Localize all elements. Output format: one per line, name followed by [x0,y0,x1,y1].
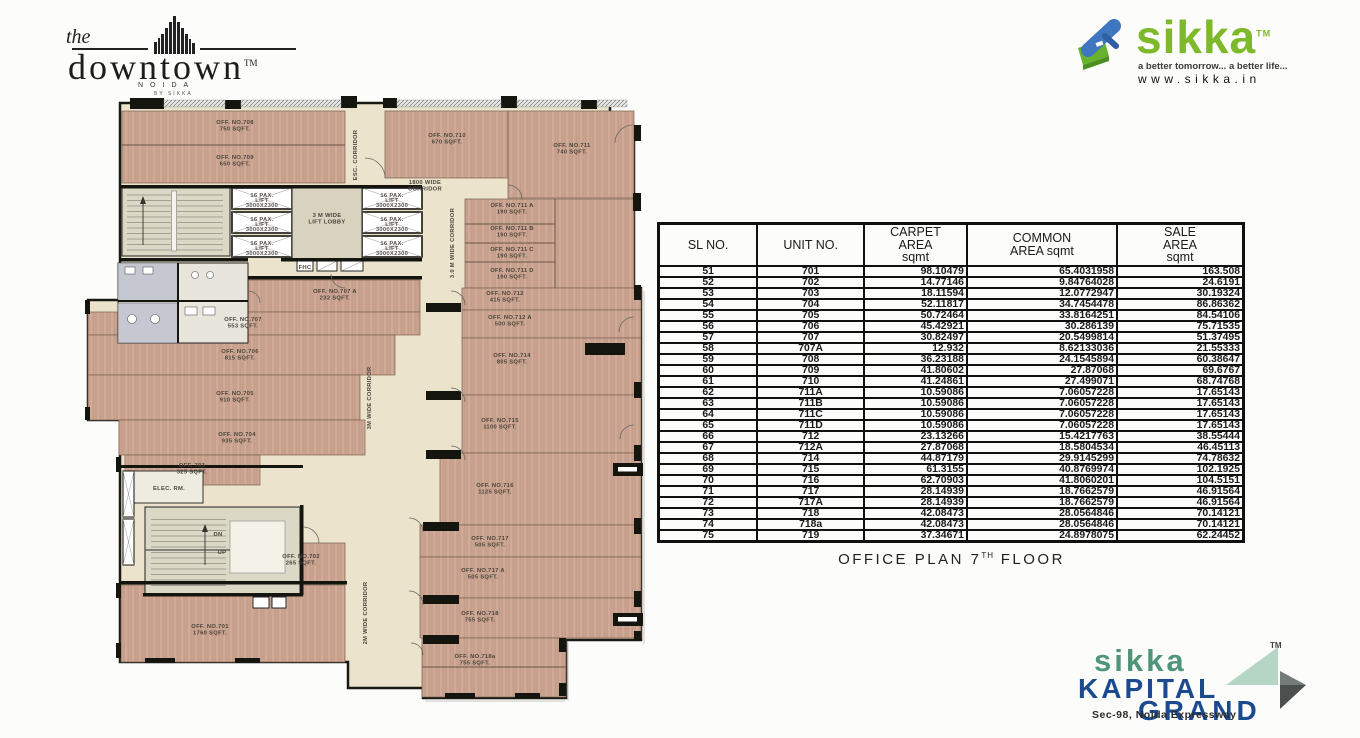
table-cell: 703 [757,288,864,299]
table-cell: 69.6767 [1117,365,1244,376]
table-cell: 104.5151 [1117,475,1244,486]
area-table: SL NO.UNIT NO.CARPETAREAsqmtCOMMONAREA s… [657,222,1246,543]
table-cell: 63 [659,398,758,409]
table-cell: 58 [659,343,758,354]
table-cell: 705 [757,310,864,321]
table-cell: 712A [757,442,864,453]
toilets [118,263,248,343]
table-cell: 711C [757,409,864,420]
room-label: OFF. NO.709650 SQFT. [216,155,254,168]
table-cell: 17.65143 [1117,409,1244,420]
table-cell: 12.0772947 [967,288,1117,299]
caption-ordinal: TH [981,551,994,560]
table-cell: 708 [757,354,864,365]
table-cell: 27.87068 [864,442,967,453]
caption-suffix: FLOOR [994,551,1065,568]
table-cell: 54 [659,299,758,310]
table-cell: 24.8978075 [967,530,1117,542]
table-cell: 10.59086 [864,409,967,420]
table-cell: 52.11817 [864,299,967,310]
table-cell: 9.84764028 [967,277,1117,288]
table-row: 5170198.1047965.4031958163.508 [659,266,1244,277]
table-cell: 719 [757,530,864,542]
room-label: OFF. NO.704935 SQFT. [218,432,256,445]
table-cell: 711B [757,398,864,409]
table-row: 5370318.1159412.077294730.19324 [659,288,1244,299]
table-row: 64711C10.590867.0605722817.65143 [659,409,1244,420]
sikka-tm: TM [1256,29,1271,39]
table-cell: 718a [757,519,864,530]
table-cell: 41.24861 [864,376,967,387]
table-cell: 68 [659,453,758,464]
table-cell: 8.62133036 [967,343,1117,354]
table-cell: 75.71535 [1117,321,1244,332]
table-cell: 72 [659,497,758,508]
table-cell: 74.78632 [1117,453,1244,464]
table-cell: 27.87068 [967,365,1117,376]
table-cell: 710 [757,376,864,387]
table-cell: 20.5499814 [967,332,1117,343]
table-cell: 28.14939 [864,486,967,497]
brochure-page: { "branding": { "downtown": {"the":"the"… [0,0,1360,738]
table-cell: 704 [757,299,864,310]
room-label: OFF. NO.705910 SQFT. [216,391,254,404]
table-cell: 7.06057228 [967,420,1117,431]
table-cell: 712 [757,431,864,442]
table-cell: 45.42921 [864,321,967,332]
table-row: 74718a42.0847328.056484670.14121 [659,519,1244,530]
table-cell: 50.72464 [864,310,967,321]
area-table-head-row: SL NO.UNIT NO.CARPETAREAsqmtCOMMONAREA s… [659,224,1244,266]
table-cell: 36.23188 [864,354,967,365]
table-row: 7171728.1493918.766257946.91564 [659,486,1244,497]
table-cell: 46.91564 [1117,486,1244,497]
table-cell: 17.65143 [1117,420,1244,431]
table-cell: 709 [757,365,864,376]
table-cell: 70 [659,475,758,486]
table-row: 7571937.3467124.897807562.24452 [659,530,1244,542]
room-label: OFF. NO.712415 SQFT. [486,291,523,304]
table-row: 72717A28.1493918.766257946.91564 [659,497,1244,508]
table-cell: 163.508 [1117,266,1244,277]
table-cell: 62.24452 [1117,530,1244,542]
table-cell: 46.45113 [1117,442,1244,453]
room-label: OFF. 703325 SQFT. [177,463,207,476]
table-cell: 66 [659,431,758,442]
table-cell: 60 [659,365,758,376]
table-cell: 701 [757,266,864,277]
plan-caption: OFFICE PLAN 7TH FLOOR [657,551,1246,568]
table-cell: 28.14939 [864,497,967,508]
table-cell: 10.59086 [864,387,967,398]
table-cell: 702 [757,277,864,288]
downtown-logo: the downtownTM NOIDA BY SIKKA [58,12,308,92]
table-cell: 60.38647 [1117,354,1244,365]
table-cell: 24.6191 [1117,277,1244,288]
table-cell: 718 [757,508,864,519]
table-cell: 38.55444 [1117,431,1244,442]
table-row: 5770730.8249720.549981451.37495 [659,332,1244,343]
table-cell: 17.65143 [1117,387,1244,398]
table-cell: 70.14121 [1117,508,1244,519]
table-cell: 24.1545894 [967,354,1117,365]
room-label: OFF. NO.718a755 SQFT. [455,654,496,667]
table-cell: 18.5804534 [967,442,1117,453]
table-row: 7371842.0847328.056484670.14121 [659,508,1244,519]
table-cell: 71 [659,486,758,497]
table-cell: 15.4217763 [967,431,1117,442]
table-row: 6070941.8060227.8706869.6767 [659,365,1244,376]
room-label: OFF. NO.710670 SQFT. [428,133,465,146]
table-cell: 21.55333 [1117,343,1244,354]
table-cell: 52 [659,277,758,288]
table-cell: 14.77146 [864,277,967,288]
table-row: 65711D10.590867.0605722817.65143 [659,420,1244,431]
room-label: OFF. NO.7161125 SQFT. [476,483,514,496]
table-row: 6671223.1326615.421776338.55444 [659,431,1244,442]
area-table-body: 5170198.1047965.4031958163.5085270214.77… [659,266,1244,542]
table-cell: 7.06057228 [967,387,1117,398]
plan-annotation: 3 M WIDELIFT LOBBY [308,213,345,226]
table-cell: 717 [757,486,864,497]
table-cell: 17.65143 [1117,398,1244,409]
room-label: OFF. NO.717505 SQFT. [471,536,508,549]
plan-annotation: ELEC. RM. [153,486,185,492]
table-row: 6971561.315540.8769974102.1925 [659,464,1244,475]
table-cell: 7.06057228 [967,398,1117,409]
table-cell: 53 [659,288,758,299]
column-header: UNIT NO. [757,224,864,266]
upper-stair-core [122,188,230,256]
plan-annotation: 3.0 M WIDE CORRIDOR [450,207,456,278]
table-cell: 62.70903 [864,475,967,486]
plan-annotation: DN [214,532,223,538]
room-label: OFF. NO.708750 SQFT. [216,120,254,133]
room-label: OFF. NO.718755 SQFT. [461,611,499,624]
plan-annotation: UP [218,550,227,556]
room-label: OFF. NO.707553 SQFT. [224,317,261,330]
table-cell: 44.87179 [864,453,967,464]
table-cell: 706 [757,321,864,332]
table-cell: 59 [659,354,758,365]
floor-plan: OFF. NO.708750 SQFT.OFF. NO.709650 SQFT.… [85,95,645,710]
table-cell: 64 [659,409,758,420]
plan-annotation: ESC. CORRIDOR [353,129,359,180]
table-row: 58707A12.9328.6213303621.55333 [659,343,1244,354]
downtown-name: downtown [68,47,244,87]
table-cell: 70.14121 [1117,519,1244,530]
table-cell: 46.91564 [1117,497,1244,508]
table-cell: 55 [659,310,758,321]
table-cell: 67 [659,442,758,453]
sikka-icon [1072,14,1132,77]
table-cell: 42.08473 [864,519,967,530]
table-cell: 56 [659,321,758,332]
column-header: SALEAREAsqmt [1117,224,1244,266]
sikka-name: sikkaTM [1136,10,1271,64]
table-cell: 37.34671 [864,530,967,542]
table-cell: 18.11594 [864,288,967,299]
plan-annotation: 2M WIDE CORRIDOR [363,581,369,644]
table-row: 67712A27.8706818.580453446.45113 [659,442,1244,453]
table-cell: 711A [757,387,864,398]
table-cell: 41.80602 [864,365,967,376]
table-cell: 30.19324 [1117,288,1244,299]
table-cell: 716 [757,475,864,486]
downtown-tm: TM [244,58,258,68]
table-cell: 711D [757,420,864,431]
table-cell: 68.74768 [1117,376,1244,387]
table-cell: 27.499071 [967,376,1117,387]
table-cell: 40.8769974 [967,464,1117,475]
table-row: 7071662.7090341.8060201104.5151 [659,475,1244,486]
table-cell: 18.7662579 [967,486,1117,497]
table-cell: 12.932 [864,343,967,354]
table-row: 6871444.8717929.914529974.78632 [659,453,1244,464]
table-cell: 51.37495 [1117,332,1244,343]
table-cell: 62 [659,387,758,398]
table-cell: 61 [659,376,758,387]
table-cell: 33.8164251 [967,310,1117,321]
table-cell: 61.3155 [864,464,967,475]
table-row: 63711B10.590867.0605722817.65143 [659,398,1244,409]
table-cell: 84.54106 [1117,310,1244,321]
table-cell: 28.0564846 [967,508,1117,519]
room-label: OFF. NO.711740 SQFT. [553,143,591,156]
column-header: SL NO. [659,224,758,266]
table-cell: 30.82497 [864,332,967,343]
table-cell: 65.4031958 [967,266,1117,277]
table-row: 5670645.4292130.28613975.71535 [659,321,1244,332]
table-cell: 7.06057228 [967,409,1117,420]
table-cell: 74 [659,519,758,530]
table-cell: 42.08473 [864,508,967,519]
kapital-address: Sec-98, Noida Expressway [1092,709,1237,721]
sikka-name-text: sikka [1136,11,1256,63]
table-row: 6171041.2486127.49907168.74768 [659,376,1244,387]
table-cell: 717A [757,497,864,508]
table-cell: 98.10479 [864,266,967,277]
table-row: 5470452.1181734.745447886.86362 [659,299,1244,310]
table-cell: 73 [659,508,758,519]
table-cell: 65 [659,420,758,431]
room-label: OFF. NO.702265 SQFT. [282,554,319,567]
table-cell: 714 [757,453,864,464]
table-cell: 10.59086 [864,398,967,409]
room-label: OFF. NO.706815 SQFT. [221,349,259,362]
table-cell: 34.7454478 [967,299,1117,310]
sikka-url: www.sikka.in [1138,72,1261,86]
kapital-tm: TM [1270,641,1282,650]
table-cell: 18.7662579 [967,497,1117,508]
kapital-grand-logo: sikka TM KAPITAL GRAND Sec-98, Noida Exp… [1058,643,1313,733]
table-cell: 102.1925 [1117,464,1244,475]
room-label: OFF. NO.7151100 SQFT. [481,418,519,431]
table-cell: 51 [659,266,758,277]
table-cell: 10.59086 [864,420,967,431]
table-row: 62711A10.590867.0605722817.65143 [659,387,1244,398]
room-label: OFF. NO.714805 SQFT. [493,353,531,366]
table-cell: 75 [659,530,758,542]
table-cell: 41.8060201 [967,475,1117,486]
sikka-logo: sikkaTM a better tomorrow... a better li… [1072,14,1312,90]
table-row: 5570550.7246433.816425184.54106 [659,310,1244,321]
table-cell: 707 [757,332,864,343]
plan-annotation: 3M WIDE CORRIDOR [367,366,373,429]
table-cell: 86.86362 [1117,299,1244,310]
column-header: COMMONAREA sqmt [967,224,1117,266]
table-cell: 30.286139 [967,321,1117,332]
table-cell: 57 [659,332,758,343]
sikka-tagline: a better tomorrow... a better life... [1138,61,1288,72]
table-cell: 29.9145299 [967,453,1117,464]
table-cell: 707A [757,343,864,354]
table-cell: 28.0564846 [967,519,1117,530]
plan-annotation: 1800 WIDECORRIDOR [408,180,442,193]
table-cell: 69 [659,464,758,475]
table-cell: 23.13266 [864,431,967,442]
table-row: 5970836.2318824.154589460.38647 [659,354,1244,365]
table-row: 5270214.771469.8476402824.6191 [659,277,1244,288]
column-header: CARPETAREAsqmt [864,224,967,266]
table-cell: 715 [757,464,864,475]
plan-annotation: FHC [299,265,312,271]
downtown-city: NOIDA [138,82,195,89]
caption-text: OFFICE PLAN 7 [838,551,981,568]
room-label: OFF. NO.7011760 SQFT. [191,624,229,637]
